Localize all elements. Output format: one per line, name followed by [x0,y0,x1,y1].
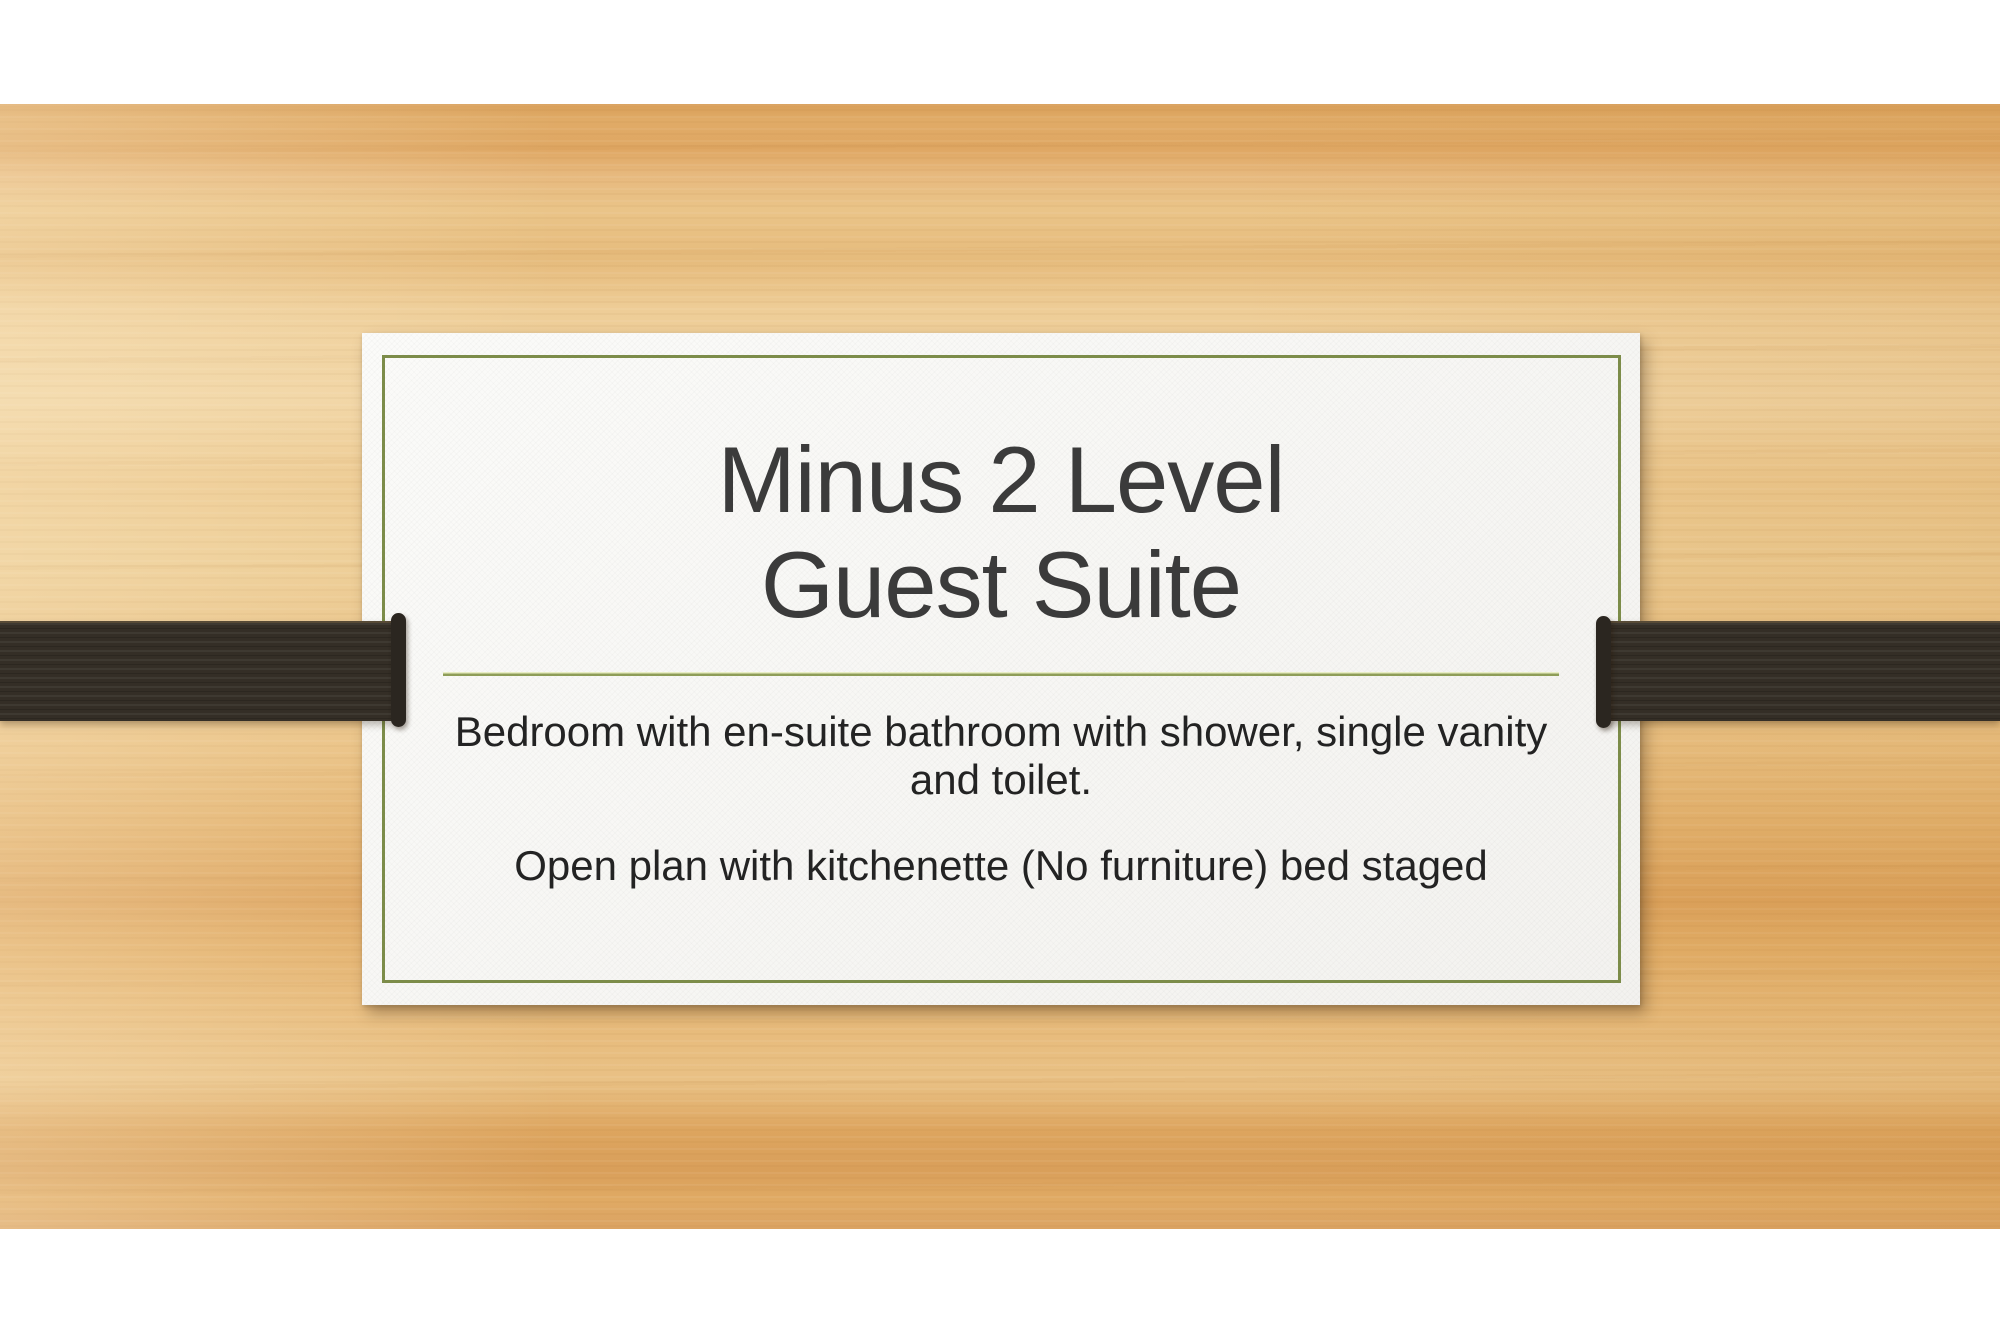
title-separator-rule [443,672,1559,676]
slide-background: Minus 2 Level Guest Suite Bedroom with e… [0,104,2000,1229]
content-card: Minus 2 Level Guest Suite Bedroom with e… [362,333,1640,1005]
body-paragraph-2: Open plan with kitchenette (No furniture… [431,842,1571,890]
right-ribbon-cap [1596,616,1611,728]
slide-body: Bedroom with en-suite bathroom with show… [431,708,1571,891]
slide-title: Minus 2 Level Guest Suite [718,427,1285,638]
left-ribbon-cap [391,613,406,727]
card-content: Minus 2 Level Guest Suite Bedroom with e… [362,333,1640,1005]
page: Minus 2 Level Guest Suite Bedroom with e… [0,0,2000,1333]
slide-title-line-2: Guest Suite [718,532,1285,637]
left-ribbon [0,621,397,721]
slide-title-line-1: Minus 2 Level [718,427,1285,532]
body-paragraph-1: Bedroom with en-suite bathroom with show… [431,708,1571,805]
right-ribbon [1601,621,2000,721]
